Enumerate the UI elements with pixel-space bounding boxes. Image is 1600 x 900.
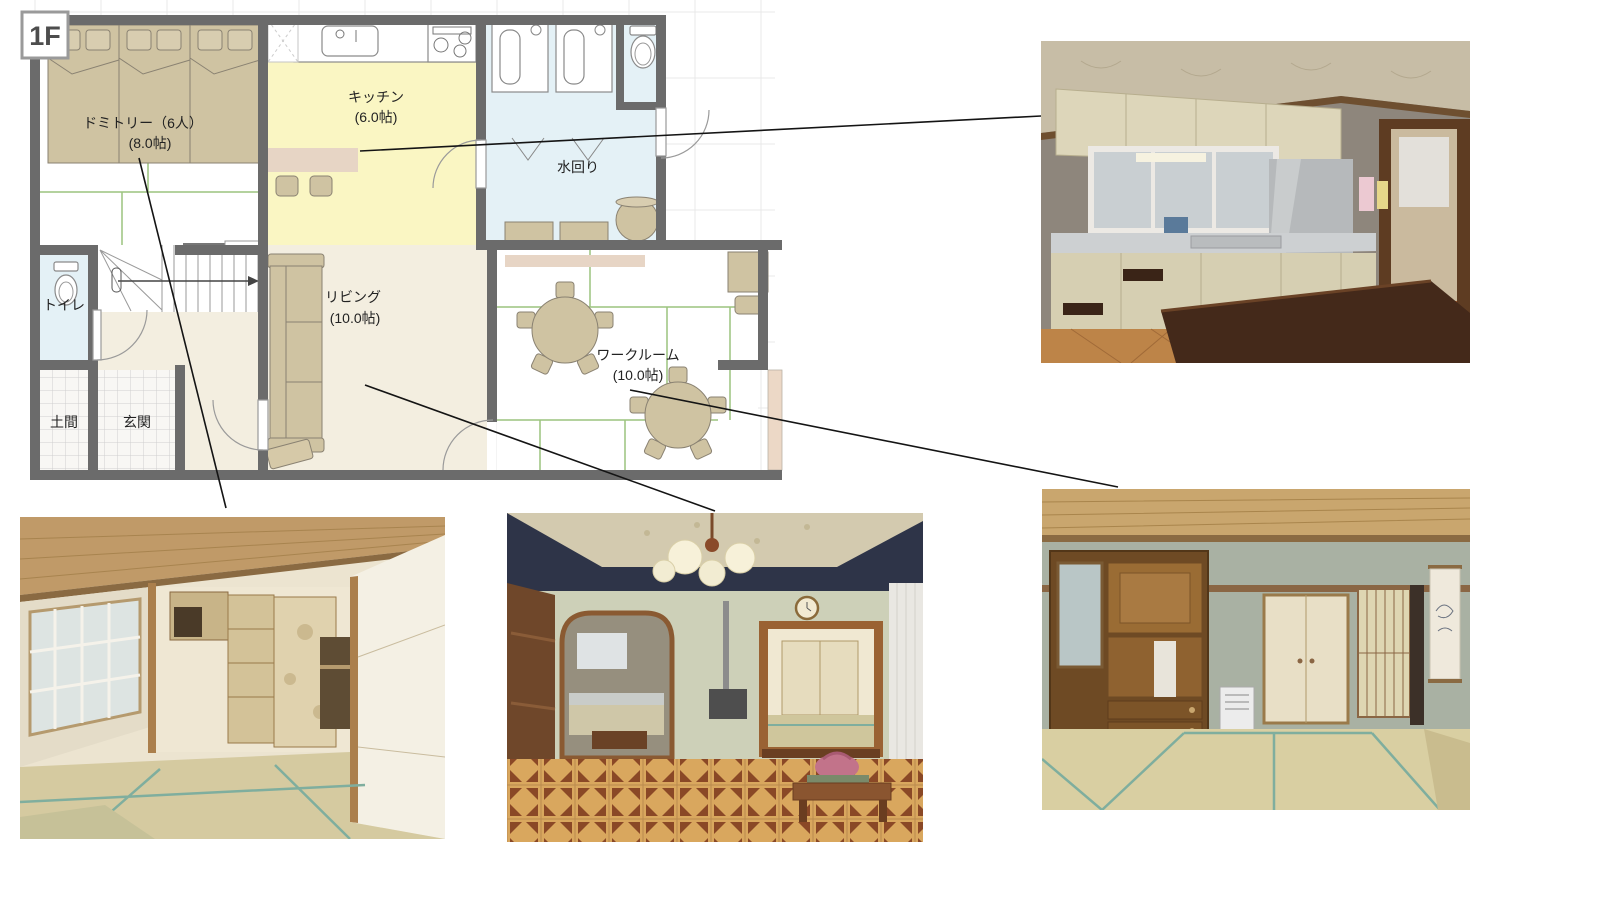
toilet-icon bbox=[630, 26, 656, 68]
label-doma: 土間 bbox=[50, 414, 78, 430]
bathtub-icon bbox=[564, 30, 584, 84]
hanging-scroll bbox=[1428, 565, 1462, 683]
label-living-size: (10.0帖) bbox=[330, 310, 381, 326]
bath-mat bbox=[505, 222, 553, 242]
bathtub-icon bbox=[500, 30, 520, 84]
sofa bbox=[268, 254, 324, 452]
towel-pink bbox=[1359, 177, 1374, 211]
label-workroom-size: (10.0帖) bbox=[613, 367, 664, 383]
work-counter bbox=[505, 255, 645, 267]
arch-to-kitchen bbox=[562, 613, 672, 758]
closet-doors bbox=[1264, 595, 1348, 723]
page-canvas: 1F ドミトリー（6人） (8.0帖) キッチン (6.0帖) 水回り トイレ … bbox=[0, 0, 1600, 900]
bath-mat bbox=[560, 222, 608, 242]
dormitory-window bbox=[30, 599, 140, 735]
stove-icon bbox=[428, 24, 476, 62]
wall-clock bbox=[796, 597, 818, 619]
stool bbox=[310, 176, 332, 196]
label-dormitory-name: ドミトリー（6人） bbox=[83, 115, 203, 131]
heater bbox=[1220, 687, 1254, 731]
sink-icon bbox=[322, 26, 378, 56]
label-dormitory-size: (8.0帖) bbox=[129, 135, 172, 151]
label-living-name: リビング bbox=[325, 289, 381, 305]
right-wall bbox=[350, 535, 445, 839]
floor-label: 1F bbox=[29, 21, 61, 51]
label-kitchen-size: (6.0帖) bbox=[355, 109, 398, 125]
label-workroom-name: ワークルーム bbox=[596, 347, 679, 363]
photo-dormitory bbox=[20, 517, 445, 839]
stove bbox=[709, 689, 747, 719]
lattice-door bbox=[1358, 589, 1410, 717]
photo-living bbox=[507, 513, 923, 842]
towel-yellow bbox=[1377, 181, 1388, 209]
floor-label-box: 1F bbox=[22, 12, 68, 58]
dark-pillar bbox=[1410, 585, 1424, 725]
label-kitchen-name: キッチン bbox=[348, 89, 404, 105]
opening-to-tatami-room bbox=[759, 621, 883, 758]
photo-workroom bbox=[1042, 489, 1470, 810]
stool bbox=[276, 176, 298, 196]
photo-kitchen bbox=[1041, 41, 1470, 363]
label-genkan: 玄関 bbox=[123, 414, 151, 430]
wood-ceiling bbox=[1042, 489, 1470, 537]
label-water-area: 水回り bbox=[557, 159, 599, 175]
kitchen-counter bbox=[268, 148, 358, 172]
bucket bbox=[1164, 217, 1188, 233]
stove-pipe bbox=[723, 601, 729, 693]
label-toilet: トイレ bbox=[43, 297, 85, 313]
